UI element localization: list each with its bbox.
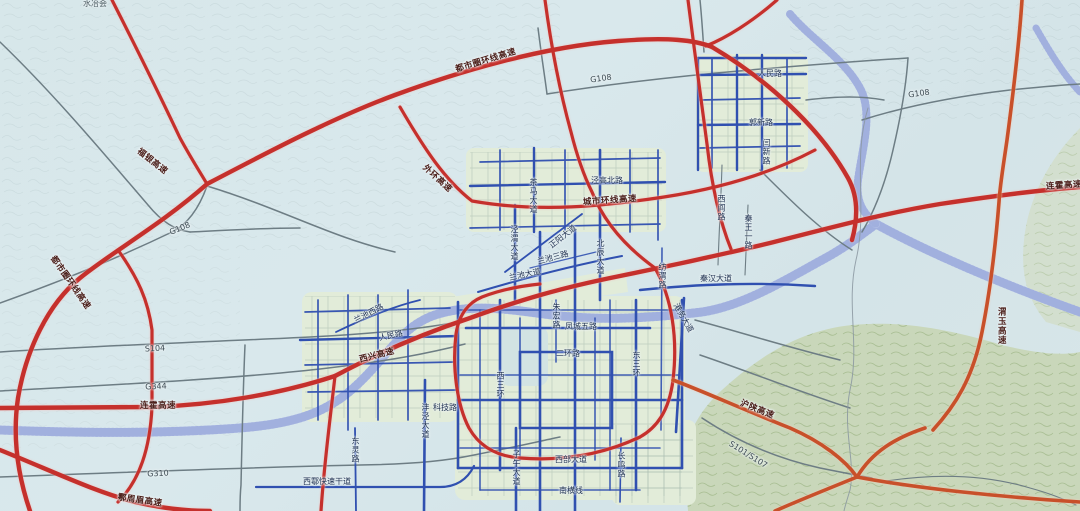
map-canvas	[0, 0, 1080, 511]
road-planning-map: 水冶会福银高速都市圈环线高速都市圈环线高速G108G108G108连霍高速连霍高…	[0, 0, 1080, 511]
